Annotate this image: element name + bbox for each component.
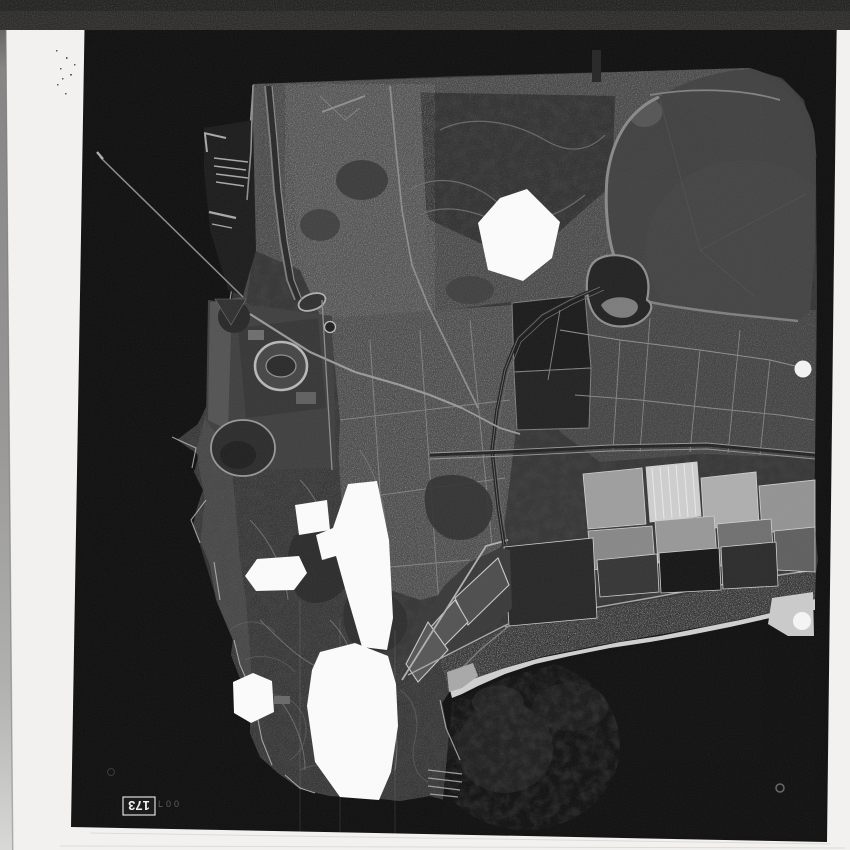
svg-text:L00: L00 [158,799,182,809]
svg-text:173: 173 [128,798,150,813]
